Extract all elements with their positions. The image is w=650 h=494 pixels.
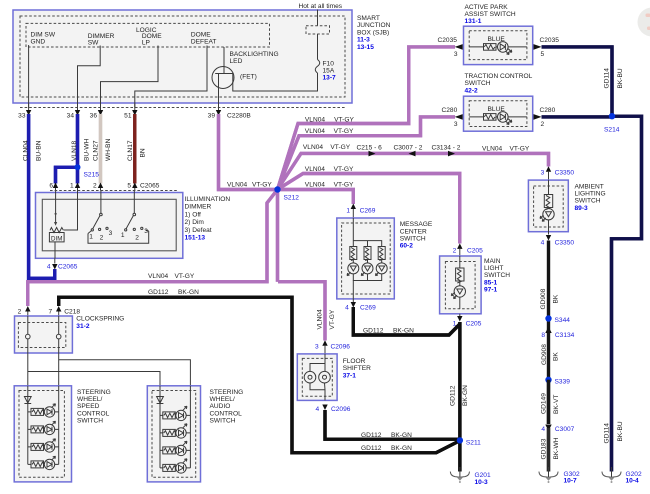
svg-text:LED: LED — [230, 58, 243, 65]
svg-text:4: 4 — [541, 426, 545, 433]
svg-text:ASSIST SWITCH: ASSIST SWITCH — [465, 11, 516, 18]
svg-text:DIMMER: DIMMER — [185, 204, 212, 211]
svg-text:VT-GY: VT-GY — [175, 273, 195, 280]
svg-text:1: 1 — [346, 208, 350, 215]
svg-text:CONTROL: CONTROL — [210, 410, 243, 417]
svg-text:36: 36 — [90, 113, 98, 120]
svg-text:C2096: C2096 — [331, 406, 351, 413]
svg-text:Hot at all times: Hot at all times — [299, 3, 343, 10]
svg-text:C205: C205 — [467, 247, 483, 254]
svg-text:13-7: 13-7 — [323, 75, 337, 82]
svg-text:S214: S214 — [604, 127, 620, 134]
svg-text:CONTROL: CONTROL — [77, 410, 110, 417]
svg-text:C3350: C3350 — [555, 240, 575, 247]
svg-text:11-3: 11-3 — [357, 37, 370, 44]
svg-text:GD114: GD114 — [604, 68, 611, 89]
svg-text:S344: S344 — [555, 317, 571, 324]
svg-text:3: 3 — [315, 343, 319, 350]
svg-text:C3134: C3134 — [555, 332, 575, 339]
svg-text:C205: C205 — [466, 321, 482, 328]
svg-text:BK-GN: BK-GN — [393, 328, 414, 335]
svg-text:GND: GND — [31, 39, 46, 46]
svg-text:DEFEAT: DEFEAT — [191, 39, 217, 46]
svg-text:151-13: 151-13 — [185, 235, 206, 242]
svg-text:AUDIO: AUDIO — [210, 403, 231, 410]
svg-text:C218: C218 — [64, 309, 80, 316]
svg-text:WHEEL/: WHEEL/ — [77, 396, 102, 403]
svg-text:C269: C269 — [360, 208, 376, 215]
svg-text:34: 34 — [67, 113, 75, 120]
svg-text:51: 51 — [124, 113, 132, 120]
svg-text:CENTER: CENTER — [400, 228, 427, 235]
svg-text:GD112: GD112 — [361, 445, 382, 452]
svg-text:BK: BK — [552, 294, 559, 303]
svg-text:GD112: GD112 — [148, 289, 169, 296]
svg-text:GD112: GD112 — [450, 385, 457, 406]
svg-text:39: 39 — [208, 113, 216, 120]
svg-text:C280: C280 — [540, 107, 556, 114]
svg-text:37-1: 37-1 — [343, 372, 357, 379]
svg-text:C3350: C3350 — [555, 169, 575, 176]
svg-text:C3134 - 2: C3134 - 2 — [432, 145, 461, 152]
svg-text:1: 1 — [89, 233, 93, 240]
svg-text:5: 5 — [127, 182, 131, 189]
svg-text:10-4: 10-4 — [626, 478, 640, 485]
svg-text:WHEEL/: WHEEL/ — [210, 396, 235, 403]
svg-text:C2065: C2065 — [140, 182, 160, 189]
svg-text:VLN04: VLN04 — [305, 128, 325, 135]
svg-text:3: 3 — [454, 121, 458, 128]
svg-text:C2096: C2096 — [331, 343, 351, 350]
svg-text:C280: C280 — [442, 107, 458, 114]
svg-text:VT-GY: VT-GY — [329, 309, 336, 329]
svg-text:GD114: GD114 — [603, 423, 610, 444]
svg-text:C2035: C2035 — [540, 37, 560, 44]
svg-text:VLN04: VLN04 — [305, 181, 325, 188]
svg-text:C3007 - 2: C3007 - 2 — [394, 145, 423, 152]
svg-text:6: 6 — [49, 182, 53, 189]
svg-text:10-3: 10-3 — [475, 479, 489, 486]
svg-text:42-2: 42-2 — [465, 87, 479, 94]
svg-text:VT-GY: VT-GY — [334, 116, 354, 123]
svg-text:S215: S215 — [84, 171, 100, 178]
svg-text:BK-GN: BK-GN — [391, 445, 412, 452]
svg-text:GD908: GD908 — [540, 288, 547, 309]
svg-text:STEERING: STEERING — [210, 389, 244, 396]
svg-text:CLOCKSPRING: CLOCKSPRING — [76, 316, 124, 323]
svg-text:SWITCH: SWITCH — [400, 236, 426, 243]
svg-text:1: 1 — [70, 182, 74, 189]
svg-text:S211: S211 — [466, 440, 481, 447]
svg-text:LP: LP — [142, 40, 151, 47]
svg-text:DIM SW: DIM SW — [31, 32, 56, 39]
svg-text:(FET): (FET) — [240, 74, 257, 81]
svg-text:15A: 15A — [323, 68, 335, 75]
svg-text:SMART: SMART — [357, 15, 380, 22]
svg-text:GD112: GD112 — [361, 432, 382, 439]
svg-text:VLN18: VLN18 — [71, 141, 78, 161]
svg-text:BU-BN: BU-BN — [36, 140, 43, 161]
svg-text:31-2: 31-2 — [76, 323, 90, 330]
svg-text:VT-GY: VT-GY — [252, 182, 272, 189]
svg-text:131-1: 131-1 — [465, 18, 482, 25]
svg-text:BK-GN: BK-GN — [178, 289, 199, 296]
svg-text:8: 8 — [541, 332, 545, 339]
svg-text:VT-GY: VT-GY — [330, 144, 350, 151]
svg-text:S339: S339 — [555, 378, 571, 385]
svg-text:LIGHTING: LIGHTING — [575, 191, 606, 198]
svg-text:1: 1 — [121, 232, 125, 239]
svg-text:C269: C269 — [360, 305, 376, 312]
svg-text:DOME: DOME — [191, 32, 211, 39]
svg-text:FLOOR: FLOOR — [343, 358, 366, 365]
svg-text:DIM: DIM — [51, 236, 62, 243]
svg-text:3: 3 — [541, 169, 545, 176]
svg-text:JUNCTION: JUNCTION — [357, 22, 391, 29]
svg-text:MAIN: MAIN — [484, 258, 501, 265]
svg-text:ACTIVE PARK: ACTIVE PARK — [465, 4, 509, 11]
svg-text:STEERING: STEERING — [77, 389, 111, 396]
svg-text:2: 2 — [541, 121, 545, 128]
svg-text:2) Dim: 2) Dim — [185, 219, 205, 226]
svg-text:TRACTION CONTROL: TRACTION CONTROL — [465, 73, 533, 80]
svg-text:2: 2 — [93, 182, 97, 189]
svg-text:VLN04: VLN04 — [305, 116, 325, 123]
svg-text:VLN04: VLN04 — [148, 273, 168, 280]
svg-text:VLN04: VLN04 — [227, 182, 247, 189]
svg-text:BOX (SJB): BOX (SJB) — [357, 29, 389, 36]
svg-text:GD908: GD908 — [541, 344, 548, 365]
svg-text:GD149: GD149 — [541, 393, 548, 414]
svg-text:2: 2 — [100, 234, 104, 241]
svg-text:1) Off: 1) Off — [185, 211, 202, 218]
svg-text:CLN04: CLN04 — [22, 140, 29, 161]
svg-text:VLN04: VLN04 — [482, 146, 502, 153]
svg-text:3: 3 — [144, 228, 148, 235]
svg-text:BK-GN: BK-GN — [391, 432, 412, 439]
svg-text:BK-BU: BK-BU — [617, 421, 624, 441]
svg-text:3) Defeat: 3) Defeat — [185, 227, 212, 234]
svg-text:BU-WH: BU-WH — [84, 138, 91, 161]
svg-text:7: 7 — [49, 309, 53, 316]
svg-text:VT-GY: VT-GY — [510, 146, 530, 153]
svg-text:ILLUMINATION: ILLUMINATION — [185, 196, 231, 203]
svg-text:AMBIENT: AMBIENT — [575, 183, 604, 190]
svg-text:SWITCH: SWITCH — [465, 80, 491, 87]
svg-text:F10: F10 — [323, 61, 335, 68]
svg-text:BACKLIGHTING: BACKLIGHTING — [230, 51, 279, 58]
svg-text:VLN04: VLN04 — [305, 166, 325, 173]
svg-text:BK-WH: BK-WH — [553, 437, 560, 459]
svg-text:BK: BK — [552, 352, 559, 361]
svg-text:SHIFTER: SHIFTER — [343, 365, 371, 372]
svg-text:3: 3 — [454, 51, 458, 58]
svg-text:C215 - 6: C215 - 6 — [357, 145, 383, 152]
svg-text:VLN04: VLN04 — [303, 144, 323, 151]
svg-text:CLN17: CLN17 — [127, 140, 134, 161]
svg-text:VT-GY: VT-GY — [334, 128, 354, 135]
svg-text:BK-BU: BK-BU — [617, 68, 624, 88]
svg-text:MESSAGE: MESSAGE — [400, 221, 433, 228]
svg-text:4: 4 — [345, 305, 349, 312]
svg-text:C2280B: C2280B — [227, 113, 251, 120]
svg-text:C2035: C2035 — [438, 37, 458, 44]
svg-text:C2065: C2065 — [58, 264, 78, 271]
svg-text:2: 2 — [135, 234, 139, 241]
svg-text:GD183: GD183 — [541, 438, 548, 459]
svg-text:SWITCH: SWITCH — [77, 418, 103, 425]
svg-text:4: 4 — [541, 240, 545, 247]
svg-text:SWITCH: SWITCH — [575, 198, 601, 205]
svg-text:85-1: 85-1 — [484, 279, 498, 286]
svg-text:97-1: 97-1 — [484, 287, 498, 294]
svg-text:SWITCH: SWITCH — [210, 418, 236, 425]
svg-text:VT-GY: VT-GY — [334, 181, 354, 188]
svg-text:5: 5 — [541, 51, 545, 58]
svg-text:CLN27: CLN27 — [93, 140, 100, 161]
svg-text:89-3: 89-3 — [575, 205, 589, 212]
svg-text:10-7: 10-7 — [564, 478, 578, 485]
svg-text:BN: BN — [140, 148, 147, 157]
svg-text:LIGHT: LIGHT — [484, 265, 503, 272]
svg-text:WH-BN: WH-BN — [105, 138, 112, 161]
svg-text:3: 3 — [109, 230, 113, 237]
svg-text:C3007: C3007 — [555, 426, 575, 433]
svg-text:2: 2 — [18, 309, 22, 316]
svg-text:GD112: GD112 — [363, 328, 384, 335]
svg-text:2: 2 — [453, 247, 457, 254]
svg-text:S212: S212 — [284, 195, 300, 202]
svg-text:60-2: 60-2 — [400, 243, 414, 250]
svg-text:13-15: 13-15 — [357, 44, 374, 51]
svg-text:33: 33 — [18, 113, 26, 120]
svg-text:SW: SW — [88, 40, 99, 47]
svg-text:BK-VT: BK-VT — [553, 395, 560, 414]
svg-text:VLN04: VLN04 — [316, 309, 323, 329]
svg-text:SWITCH: SWITCH — [484, 272, 510, 279]
svg-text:4: 4 — [47, 264, 51, 271]
svg-text:4: 4 — [316, 406, 320, 413]
svg-text:SPEED: SPEED — [77, 403, 100, 410]
svg-text:VT-GY: VT-GY — [334, 166, 354, 173]
svg-text:BK-GN: BK-GN — [462, 385, 469, 406]
